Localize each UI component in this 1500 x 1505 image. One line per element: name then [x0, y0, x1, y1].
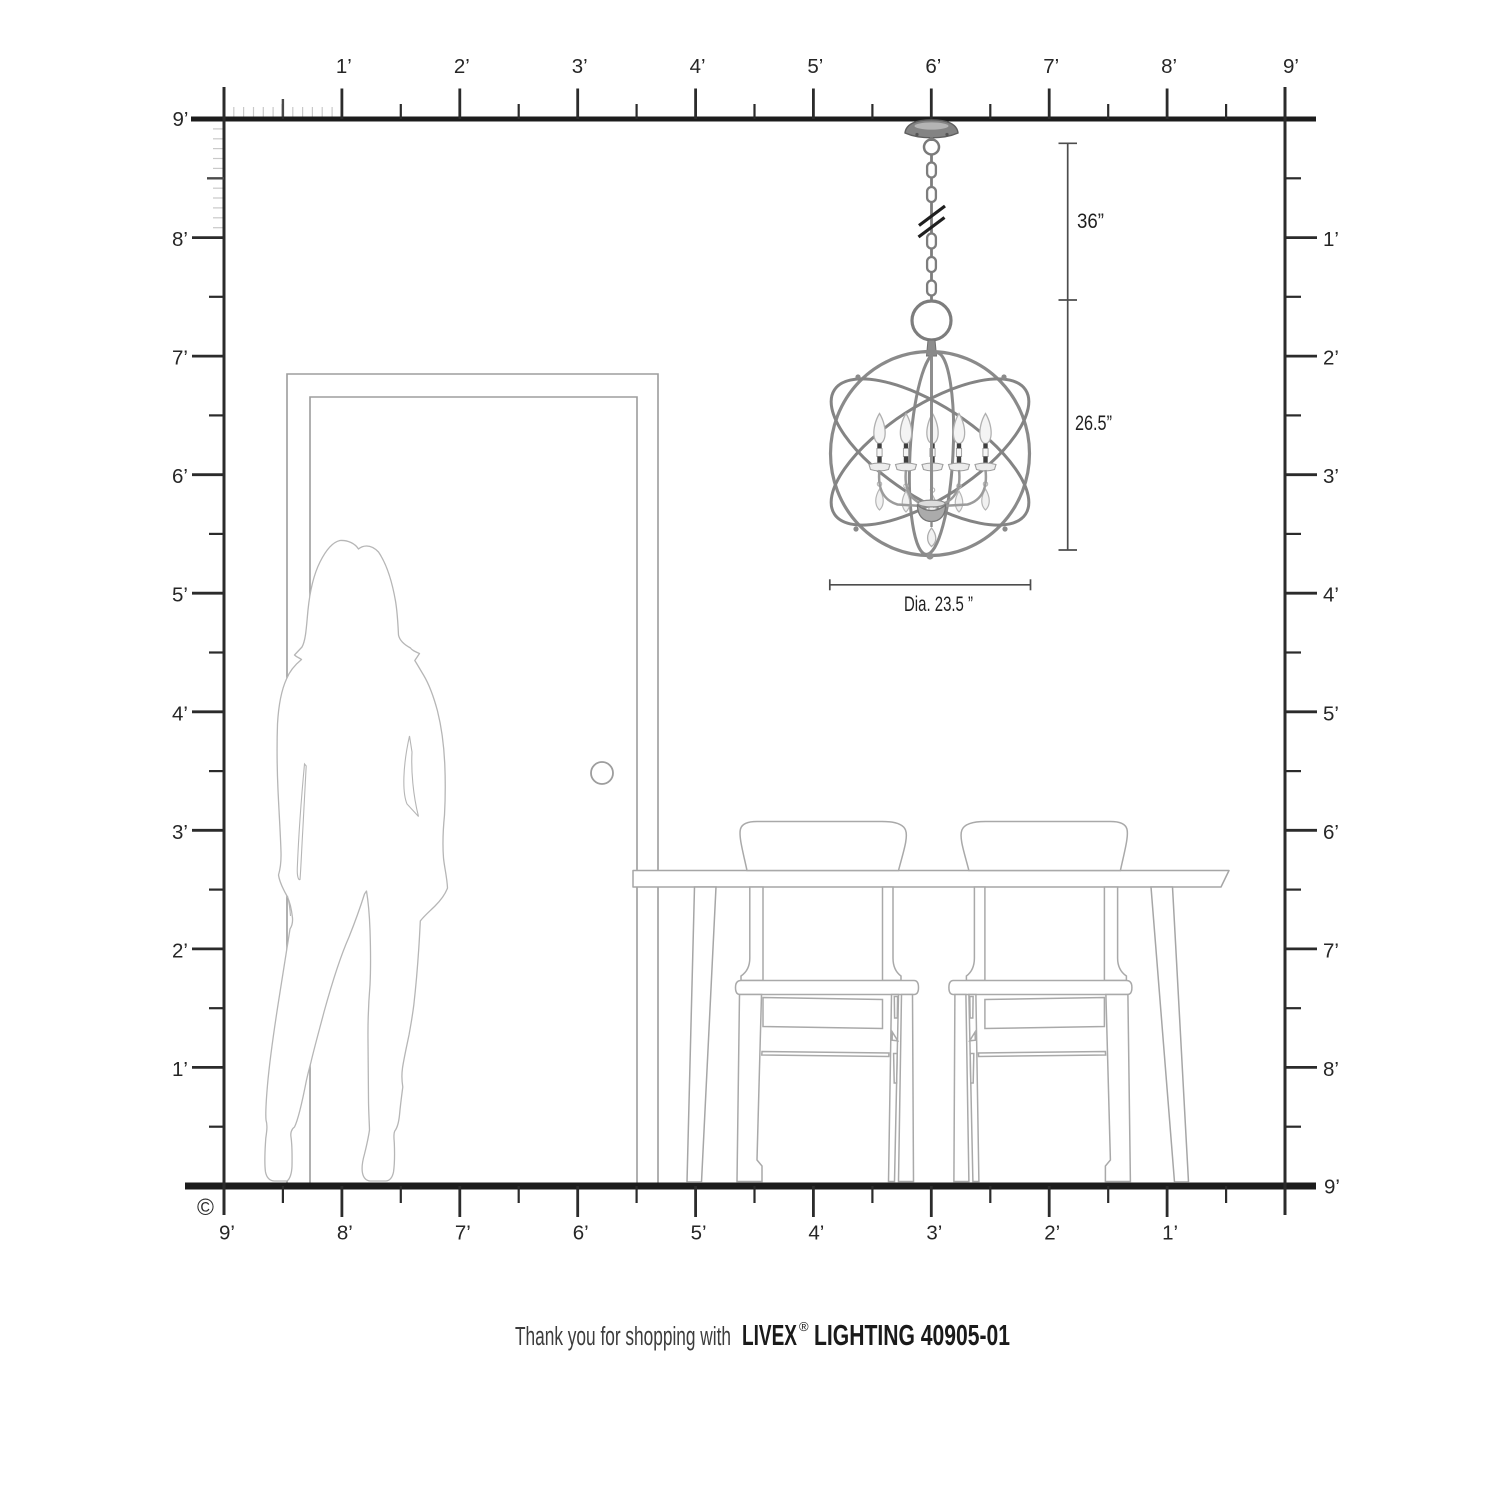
- svg-text:4’: 4’: [690, 55, 706, 78]
- svg-text:1’: 1’: [172, 1058, 188, 1081]
- svg-text:Thank you for shopping with: Thank you for shopping with: [515, 1323, 731, 1351]
- svg-text:2’: 2’: [1323, 347, 1339, 370]
- svg-text:4’: 4’: [172, 702, 188, 725]
- svg-text:©: ©: [197, 1194, 214, 1220]
- svg-text:2’: 2’: [454, 55, 470, 78]
- svg-text:6’: 6’: [172, 465, 188, 488]
- svg-text:26.5”: 26.5”: [1075, 412, 1112, 435]
- svg-text:9’: 9’: [1283, 55, 1299, 78]
- svg-text:36”: 36”: [1077, 210, 1104, 233]
- svg-text:LIVEX: LIVEX: [742, 1320, 797, 1352]
- svg-text:2’: 2’: [172, 939, 188, 962]
- svg-text:7’: 7’: [1043, 55, 1059, 78]
- svg-text:3’: 3’: [1323, 465, 1339, 488]
- svg-text:8’: 8’: [337, 1222, 353, 1245]
- svg-text:9’: 9’: [219, 1222, 235, 1245]
- svg-text:6’: 6’: [925, 55, 941, 78]
- svg-text:5’: 5’: [1323, 702, 1339, 725]
- svg-text:5’: 5’: [807, 55, 823, 78]
- svg-text:Dia. 23.5 ”: Dia. 23.5 ”: [904, 593, 973, 616]
- svg-text:3’: 3’: [172, 821, 188, 844]
- svg-text:8’: 8’: [1323, 1058, 1339, 1081]
- svg-text:7’: 7’: [1323, 939, 1339, 962]
- svg-text:7’: 7’: [455, 1222, 471, 1245]
- svg-text:3’: 3’: [926, 1222, 942, 1245]
- svg-text:2’: 2’: [1044, 1222, 1060, 1245]
- svg-text:3’: 3’: [572, 55, 588, 78]
- svg-text:8’: 8’: [1161, 55, 1177, 78]
- svg-text:4’: 4’: [808, 1222, 824, 1245]
- svg-text:4’: 4’: [1323, 584, 1339, 607]
- svg-text:6’: 6’: [573, 1222, 589, 1245]
- svg-text:1’: 1’: [336, 55, 352, 78]
- svg-text:6’: 6’: [1323, 821, 1339, 844]
- svg-text:1’: 1’: [1162, 1222, 1178, 1245]
- svg-text:7’: 7’: [172, 347, 188, 370]
- svg-text:LIGHTING 40905-01: LIGHTING 40905-01: [814, 1320, 1010, 1352]
- svg-text:®: ®: [799, 1319, 809, 1334]
- svg-text:5’: 5’: [691, 1222, 707, 1245]
- svg-text:9’: 9’: [173, 108, 189, 131]
- svg-text:5’: 5’: [172, 584, 188, 607]
- svg-text:8’: 8’: [172, 228, 188, 251]
- svg-text:9’: 9’: [1324, 1176, 1340, 1199]
- svg-text:1’: 1’: [1323, 228, 1339, 251]
